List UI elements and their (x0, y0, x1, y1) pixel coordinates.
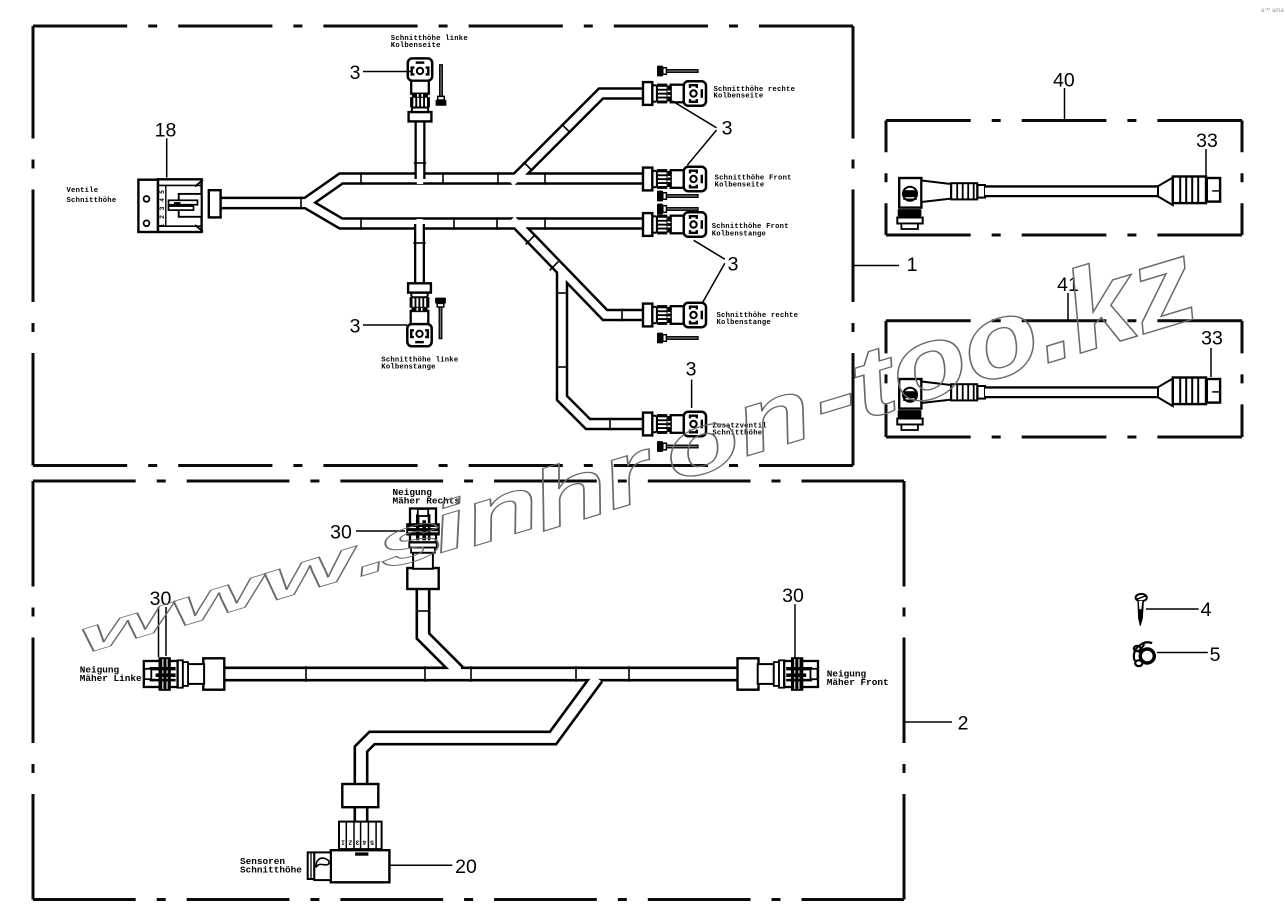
svg-text:3: 3 (350, 62, 361, 84)
svg-text:3: 3 (686, 359, 697, 381)
svg-text:40: 40 (1053, 70, 1075, 92)
svg-text:5: 5 (1210, 644, 1221, 666)
svg-text:4: 4 (1201, 599, 1212, 621)
svg-text:3: 3 (350, 316, 361, 338)
svg-text:4: 4 (159, 198, 166, 202)
svg-text:Kolbenstange: Kolbenstange (717, 319, 771, 327)
svg-text:1: 1 (907, 254, 918, 276)
svg-text:20: 20 (455, 856, 477, 878)
svg-text:3: 3 (728, 254, 739, 276)
svg-text:Ventile: Ventile (67, 187, 99, 195)
svg-text:Mäher Linke: Mäher Linke (80, 673, 142, 684)
svg-text:Kolbenstange: Kolbenstange (381, 363, 435, 371)
svg-text:Kolbenseite: Kolbenseite (715, 181, 765, 189)
svg-text:2: 2 (348, 839, 352, 846)
svg-text:5: 5 (370, 839, 374, 846)
svg-text:Mäher Front: Mäher Front (827, 677, 889, 688)
svg-text:1: 1 (341, 839, 345, 846)
svg-text:3: 3 (159, 206, 166, 210)
svg-text:Kolbenseite: Kolbenseite (714, 93, 764, 101)
svg-text:2: 2 (159, 215, 166, 219)
svg-text:2: 2 (958, 713, 969, 735)
svg-text:a™ ama: a™ ama (1261, 7, 1284, 14)
svg-text:Schnitthöhe: Schnitthöhe (240, 864, 302, 875)
svg-text:Schnitthöhe: Schnitthöhe (67, 197, 117, 205)
svg-text:1: 1 (159, 223, 166, 227)
svg-text:18: 18 (155, 120, 177, 142)
svg-text:5: 5 (159, 190, 166, 194)
svg-text:4: 4 (363, 839, 367, 846)
svg-text:Kolbenseite: Kolbenseite (391, 42, 441, 50)
svg-text:30: 30 (782, 585, 804, 607)
svg-text:Kolbenstange: Kolbenstange (712, 230, 766, 238)
svg-text:3: 3 (722, 118, 733, 140)
svg-text:3: 3 (355, 839, 359, 846)
svg-text:33: 33 (1196, 130, 1218, 152)
